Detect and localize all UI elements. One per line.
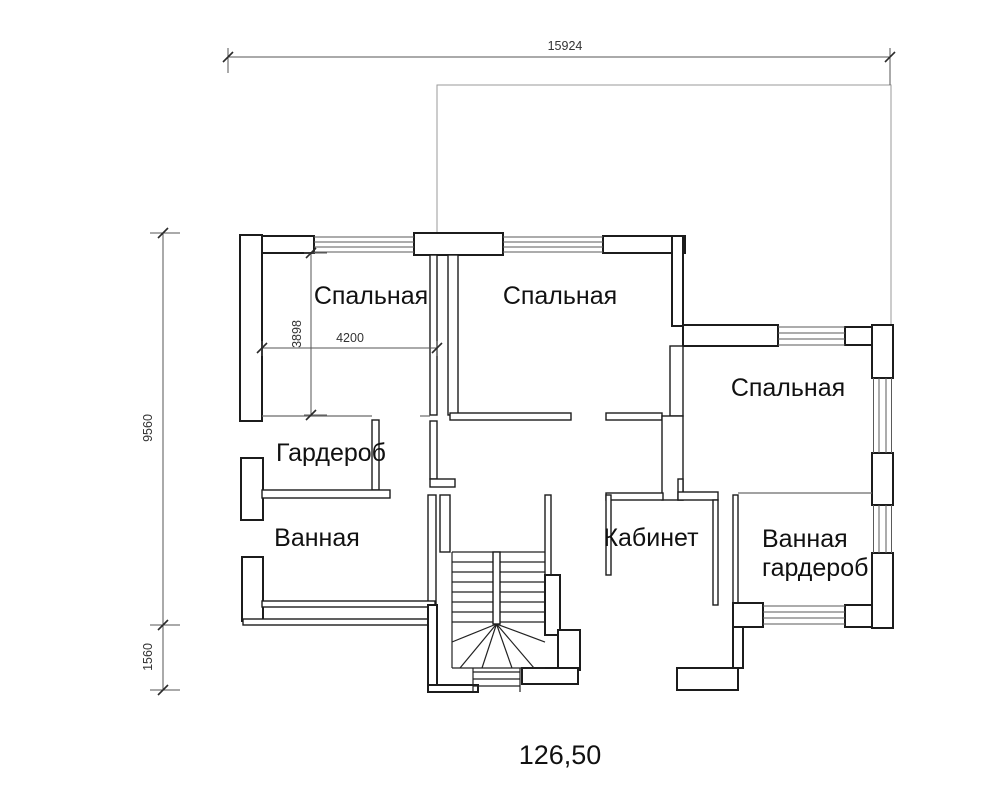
wall-bathroom-right <box>428 495 436 605</box>
dim-left-lower: 1560 <box>141 643 155 671</box>
wall-bathroom-bottom-outer <box>243 619 437 625</box>
wall-study-right <box>713 500 718 605</box>
floor-plan-canvas: 15924 9560 1560 4200 3898 Спальная Спаль… <box>0 0 1000 800</box>
wall-bedroom3-left-upper <box>670 346 683 416</box>
wall-bedroom2-bottom-left <box>450 413 571 420</box>
dim-bedroom1-width: 4200 <box>336 331 364 345</box>
wall-right-corner-bottom <box>872 553 893 628</box>
wall-stair-jamb-foot <box>430 479 455 487</box>
wall-bedroom-divider-a <box>430 255 437 415</box>
label-bathroom: Ванная <box>274 524 360 552</box>
wall-top-center-pier <box>414 233 503 255</box>
wall-bottom-c <box>677 668 738 690</box>
wall-right-corner-top <box>872 325 893 378</box>
label-study: Кабинет <box>603 524 699 552</box>
wall-step-connector <box>733 627 743 668</box>
wall-left-bathroom <box>242 557 263 621</box>
wall-bathwardrobe-bottom-left <box>733 603 763 627</box>
wall-stair-right-mid <box>545 575 560 635</box>
wall-bedroom2-right-upper <box>672 236 683 326</box>
wall-left-pier <box>241 458 263 520</box>
label-bathwardrobe-line2: гардероб <box>762 554 868 582</box>
paper-background <box>0 0 1000 800</box>
dim-left-upper: 9560 <box>141 414 155 442</box>
wall-bathwardrobe-bottom-corner <box>845 605 872 627</box>
wall-bedroom3-top-corner <box>845 327 875 345</box>
wall-bottom-a <box>428 685 478 692</box>
wall-bathwardrobe-left <box>733 495 738 603</box>
wall-left-upper <box>240 235 262 421</box>
dim-bedroom1-depth: 3898 <box>290 320 304 348</box>
label-bedroom1: Спальная <box>314 282 428 310</box>
wall-bedroom-divider-b <box>448 255 458 415</box>
wall-bedroom2-bottom-right <box>606 413 662 420</box>
label-bathwardrobe-line1: Ванная <box>762 525 848 553</box>
wall-stair-right-foot <box>558 630 580 670</box>
wall-stair-jamb-upper <box>430 421 437 479</box>
wall-right-pier-mid <box>872 453 893 505</box>
wall-vestibule-left <box>428 605 437 685</box>
total-area-value: 126,50 <box>519 740 602 770</box>
wall-corridor-bottom-right <box>678 492 718 500</box>
wall-bottom-b <box>522 668 578 684</box>
wall-stair-right-upper <box>545 495 551 575</box>
wall-study-top <box>606 493 663 500</box>
wall-wardrobe-bottom <box>262 490 390 498</box>
wall-bathroom-bottom-inner <box>262 601 435 607</box>
dim-overall-width: 15924 <box>548 39 583 53</box>
label-bedroom2: Спальная <box>503 282 617 310</box>
label-bedroom3: Спальная <box>731 374 845 402</box>
label-wardrobe: Гардероб <box>276 439 386 467</box>
wall-bedroom3-top <box>683 325 778 346</box>
wall-stair-left-inner <box>440 495 450 552</box>
stair-stringer <box>493 552 500 624</box>
